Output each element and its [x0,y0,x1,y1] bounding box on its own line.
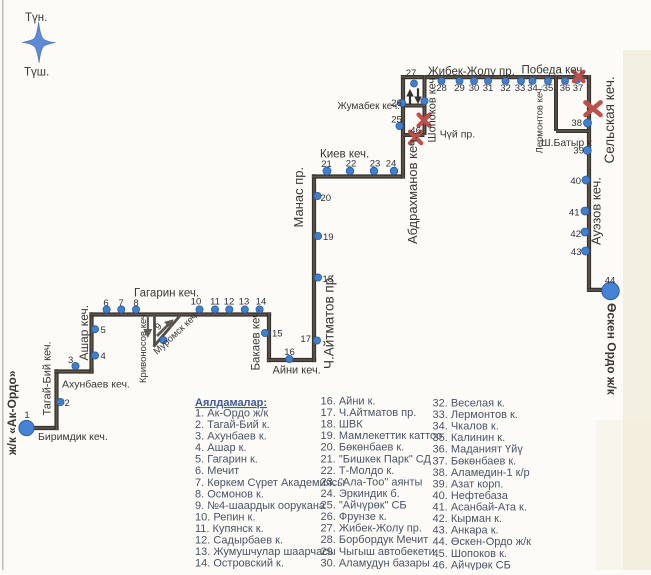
svg-text:4. Ашар к.: 4. Ашар к. [195,442,247,454]
svg-text:Манас пр.: Манас пр. [291,167,306,228]
svg-text:Жумабек кеч.: Жумабек кеч. [338,100,400,112]
svg-text:24. Эркиндик б.: 24. Эркиндик б. [321,488,400,500]
svg-text:17. Ч.Айтматов пр.: 17. Ч.Айтматов пр. [321,407,417,419]
svg-text:Айни кеч.: Айни кеч. [273,365,321,377]
svg-text:11: 11 [210,297,220,308]
svg-text:37: 37 [573,83,584,94]
svg-text:7: 7 [118,298,123,309]
svg-text:33. Лермонтов к.: 33. Лермонтов к. [433,409,518,421]
svg-text:2: 2 [65,398,70,409]
svg-text:33: 33 [515,83,526,94]
svg-text:30. Аламудун базары: 30. Аламудун базары [321,557,430,569]
svg-text:24: 24 [386,159,397,170]
svg-text:Түш.: Түш. [24,67,49,79]
svg-text:Жибек-Жолу пр.: Жибек-Жолу пр. [428,66,515,78]
svg-text:Тагай-Бий кеч.: Тагай-Бий кеч. [42,341,54,415]
svg-text:2. Тагай-Бий к.: 2. Тагай-Бий к. [195,419,270,431]
svg-text:Победа кеч.: Победа кеч. [522,65,586,77]
svg-text:Ауэзов кеч.: Ауэзов кеч. [589,177,604,245]
svg-text:15: 15 [272,329,283,340]
svg-text:26. Фрунзе к.: 26. Фрунзе к. [321,511,387,523]
svg-text:11. Купянск к.: 11. Купянск к. [195,523,264,535]
svg-text:27: 27 [406,68,417,79]
svg-text:5. Гагарин к.: 5. Гагарин к. [195,454,258,466]
svg-text:29. Чыгыш автобекети: 29. Чыгыш автобекети [321,546,435,558]
svg-text:25. "Айчүрөк" СБ: 25. "Айчүрөк" СБ [321,500,407,512]
svg-text:Бакаев кеч.: Бакаев кеч. [251,309,263,371]
svg-text:Ч.Айтматов пр.: Ч.Айтматов пр. [322,274,337,369]
svg-text:10. Репин к.: 10. Репин к. [195,511,255,523]
svg-text:Чүй пр.: Чүй пр. [440,129,475,141]
svg-text:25: 25 [391,115,402,126]
svg-text:16. Айни к.: 16. Айни к. [321,396,376,408]
svg-text:19: 19 [323,232,334,243]
svg-text:44. Өскен-Ордо ж/к: 44. Өскен-Ордо ж/к [433,536,532,548]
svg-text:20. Бөкөнбаев к.: 20. Бөкөнбаев к. [321,442,405,454]
svg-text:36: 36 [560,83,571,94]
svg-text:43. Анкара к.: 43. Анкара к. [433,525,499,537]
svg-text:39. Азат корп.: 39. Азат корп. [433,478,504,490]
svg-text:30: 30 [469,83,480,94]
svg-text:16: 16 [284,347,295,358]
svg-text:38. Аламедин-1 к/р: 38. Аламедин-1 к/р [433,467,530,479]
svg-text:Гагарин кеч.: Гагарин кеч. [134,288,199,300]
svg-text:21: 21 [321,159,332,170]
svg-text:5: 5 [101,325,106,336]
svg-text:Өскен Ордо ж/к: Өскен Ордо ж/к [605,303,619,396]
svg-text:32. Веселая к.: 32. Веселая к. [433,398,505,410]
svg-text:44: 44 [605,276,616,287]
svg-text:Кривоносов кеч.: Кривоносов кеч. [138,311,149,383]
svg-text:31: 31 [483,83,494,94]
svg-text:14. Островский к.: 14. Островский к. [195,558,284,570]
svg-text:40. Нефтебаза: 40. Нефтебаза [433,490,509,502]
svg-text:22. Т-Молдо к.: 22. Т-Молдо к. [321,465,395,477]
svg-text:38: 38 [571,118,582,129]
svg-text:36. Маданият Үйү: 36. Маданият Үйү [433,444,524,456]
svg-text:41: 41 [569,208,580,219]
svg-text:6. Мечит: 6. Мечит [195,465,239,477]
svg-text:Сельская кеч.: Сельская кеч. [602,76,617,163]
svg-text:13. Жумушчулар шаарчасы: 13. Жумушчулар шаарчасы [195,546,336,558]
svg-text:18. ШВК: 18. ШВК [321,419,364,431]
svg-text:37. Бөкөнбаев к.: 37. Бөкөнбаев к. [433,455,517,467]
svg-text:Шопоков кеч.: Шопоков кеч. [427,75,439,143]
svg-text:19. Мамлекеттик каттоо: 19. Мамлекеттик каттоо [321,430,443,442]
svg-text:8: 8 [133,298,138,309]
svg-text:42. Кырман к.: 42. Кырман к. [433,513,502,525]
svg-text:32: 32 [500,83,511,94]
svg-text:Абдрахманов кеч.: Абдрахманов кеч. [405,136,420,244]
svg-text:45. Шопоков к.: 45. Шопоков к. [433,548,507,560]
svg-text:Биримдик кеч.: Биримдик кеч. [38,431,108,443]
svg-text:42: 42 [570,229,581,240]
svg-text:46: 46 [410,126,421,137]
svg-text:ж/к «Ак-Ордо»: ж/к «Ак-Ордо» [5,370,19,456]
svg-text:9. №4-шаардык оорукана: 9. №4-шаардык оорукана [195,500,326,512]
svg-text:34. Чкалов к.: 34. Чкалов к. [433,421,499,433]
svg-text:3: 3 [68,355,73,366]
svg-text:35. Калинин к.: 35. Калинин к. [433,432,506,444]
svg-text:46. Айчүрөк СБ: 46. Айчүрөк СБ [433,559,511,570]
svg-text:12. Садырбаев к.: 12. Садырбаев к. [195,535,283,547]
svg-text:1: 1 [24,410,29,421]
svg-text:20: 20 [321,193,332,204]
svg-text:Киев кеч.: Киев кеч. [320,149,369,161]
svg-text:27. Жибек-Жолу пр.: 27. Жибек-Жолу пр. [321,523,422,535]
svg-text:23. "Ала-Тоо" аянты: 23. "Ала-Тоо" аянты [321,476,423,488]
svg-text:29: 29 [454,83,465,94]
svg-text:8. Осмонов к.: 8. Осмонов к. [195,488,264,500]
svg-text:17: 17 [300,334,311,345]
svg-text:23: 23 [370,159,381,170]
svg-text:Ахунбаев кеч.: Ахунбаев кеч. [62,379,130,391]
svg-text:3. Ахунбаев к.: 3. Ахунбаев к. [195,431,267,443]
svg-text:41. Асанбай-Ата к.: 41. Асанбай-Ата к. [433,502,527,514]
svg-text:14: 14 [256,297,267,308]
svg-text:6: 6 [103,298,108,309]
svg-text:40: 40 [570,176,581,187]
svg-text:13: 13 [239,297,250,308]
svg-text:12: 12 [224,297,235,308]
svg-text:1. Ак-Ордо ж/к: 1. Ак-Ордо ж/к [195,407,268,419]
svg-text:4: 4 [101,351,106,362]
svg-text:Ш.Батыр к: Ш.Батыр к [541,137,592,149]
svg-text:Түн.: Түн. [25,12,47,24]
svg-text:Ашар кеч.: Ашар кеч. [77,305,91,361]
svg-text:21. "Бишкек Парк" СД: 21. "Бишкек Парк" СД [321,453,432,465]
svg-text:28. Борбордук Мечит: 28. Борбордук Мечит [321,534,429,546]
svg-text:43: 43 [571,247,582,258]
